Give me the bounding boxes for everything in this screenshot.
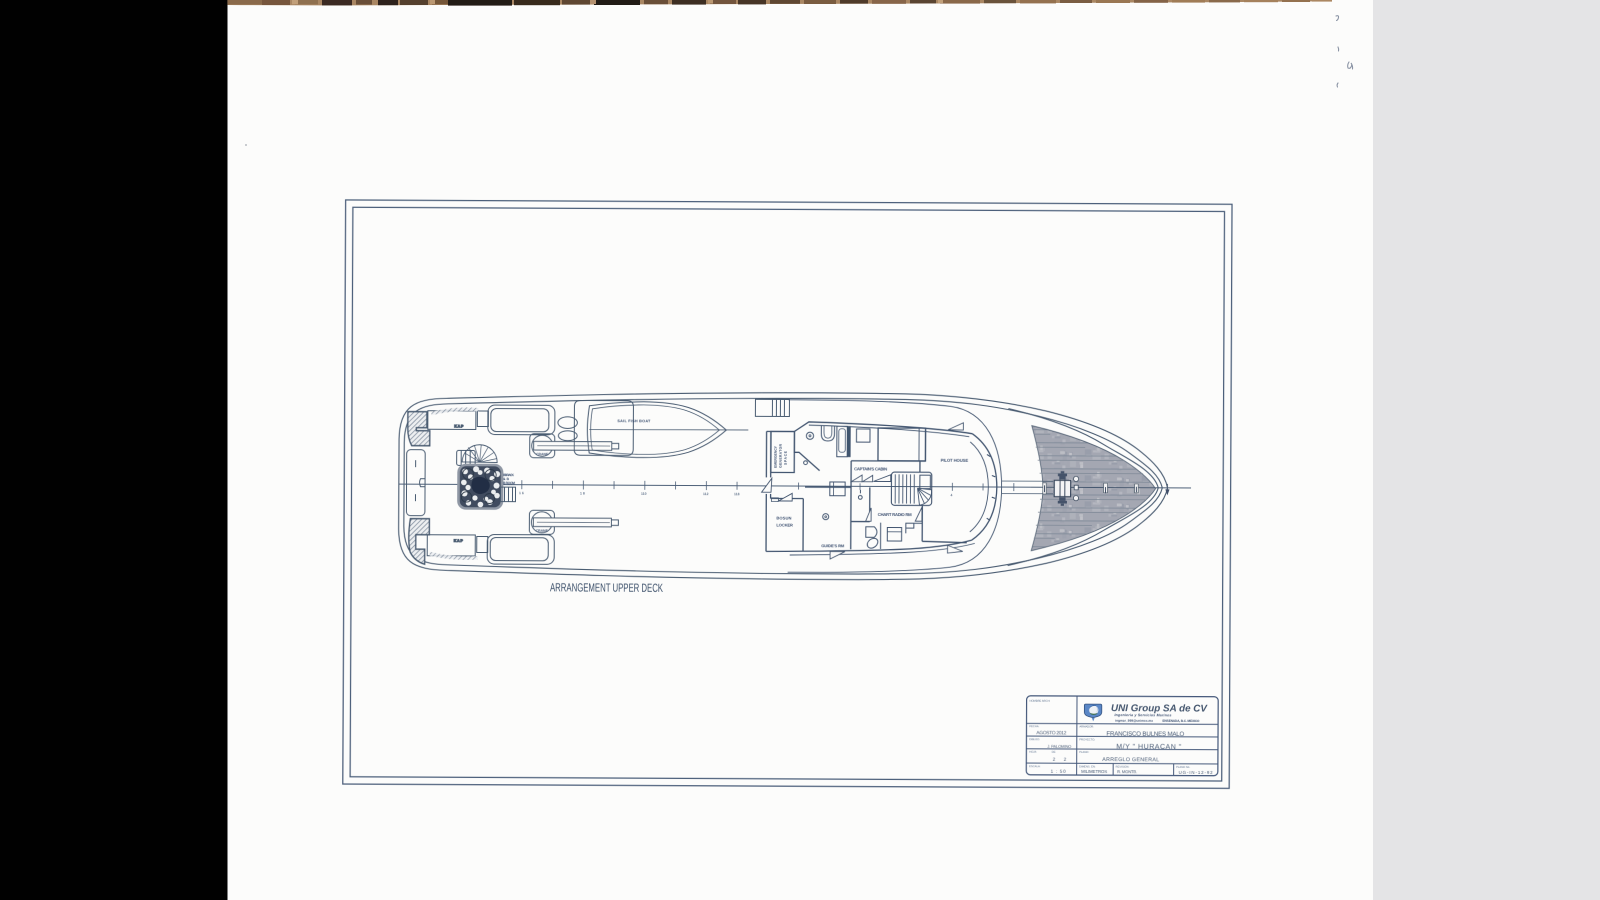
svg-text:B ROOM: B ROOM	[503, 481, 515, 485]
svg-text:SPACE: SPACE	[784, 450, 788, 465]
svg-text:ingmar_999@unimex.mx: ingmar_999@unimex.mx	[1115, 719, 1153, 723]
svg-text:CRANE: CRANE	[536, 529, 549, 533]
svg-text:NOMBRE ARCH:: NOMBRE ARCH:	[1029, 699, 1050, 702]
svg-text:PILOT HOUSE: PILOT HOUSE	[941, 458, 969, 463]
svg-text:1 : 50: 1 : 50	[1051, 769, 1066, 774]
svg-text:1 6: 1 6	[519, 491, 524, 495]
svg-text:ARREGLO GENERAL: ARREGLO GENERAL	[1102, 757, 1159, 763]
svg-text:EMERGENCY: EMERGENCY	[774, 445, 778, 468]
svg-text:SAIL FISH BOAT: SAIL FISH BOAT	[617, 419, 651, 423]
svg-text:M/Y " HURACAN ": M/Y " HURACAN "	[1116, 743, 1182, 751]
svg-text:BOSUN: BOSUN	[776, 515, 791, 520]
svg-text:MILIMETROS: MILIMETROS	[1081, 769, 1107, 774]
svg-text:FRANCISCO BULNES MALO: FRANCISCO BULNES MALO	[1106, 730, 1184, 737]
svg-text:4: 4	[950, 493, 952, 497]
svg-text:ARRANGEMENT UPPER DECK: ARRANGEMENT UPPER DECK	[550, 580, 663, 595]
svg-text:LOCKER: LOCKER	[776, 522, 793, 527]
svg-text:R. MONTB.: R. MONTB.	[1117, 769, 1137, 774]
svg-text:AGOSTO 2012: AGOSTO 2012	[1036, 730, 1066, 736]
svg-text:UG-IN-12-92: UG-IN-12-92	[1179, 770, 1214, 775]
svg-text:KAP: KAP	[454, 539, 464, 543]
svg-text:FECHA:: FECHA:	[1029, 725, 1039, 728]
svg-text:DIMENS. EN:: DIMENS. EN:	[1079, 765, 1096, 768]
svg-text:PLANO No.: PLANO No.	[1176, 766, 1190, 769]
svg-text:PROYECTO:: PROYECTO:	[1079, 738, 1095, 741]
svg-text:CHART RADIO RM: CHART RADIO RM	[878, 512, 913, 517]
svg-text:J. PALOMINO: J. PALOMINO	[1047, 744, 1071, 749]
svg-text:HOJA: HOJA	[1029, 751, 1036, 754]
svg-text:CRANE: CRANE	[536, 452, 549, 456]
svg-text:112: 112	[703, 492, 709, 496]
svg-text:110: 110	[641, 492, 647, 496]
svg-text:GENERATOR: GENERATOR	[779, 443, 783, 467]
svg-text:GUIDE'S RM: GUIDE'S RM	[821, 543, 845, 548]
svg-text:Ingenieria y Servicios Marinos: Ingenieria y Servicios Marinos	[1114, 713, 1171, 717]
svg-text:CAPTAIN'S CABIN: CAPTAIN'S CABIN	[854, 466, 887, 471]
svg-text:DE: DE	[1052, 751, 1056, 754]
svg-text:DIBUJO:: DIBUJO:	[1029, 738, 1040, 741]
svg-text:118: 118	[734, 492, 740, 496]
svg-text:ARMADOR:: ARMADOR:	[1079, 726, 1094, 729]
svg-text:ENSENADA, B.C. MEXICO: ENSENADA, B.C. MEXICO	[1162, 719, 1200, 723]
svg-text:ESCALA:: ESCALA:	[1029, 765, 1041, 768]
svg-text:1 8: 1 8	[580, 491, 585, 495]
svg-text:REVISION:: REVISION:	[1116, 765, 1130, 768]
svg-text:PLANO:: PLANO:	[1079, 751, 1089, 754]
svg-text:KAP: KAP	[454, 424, 464, 428]
